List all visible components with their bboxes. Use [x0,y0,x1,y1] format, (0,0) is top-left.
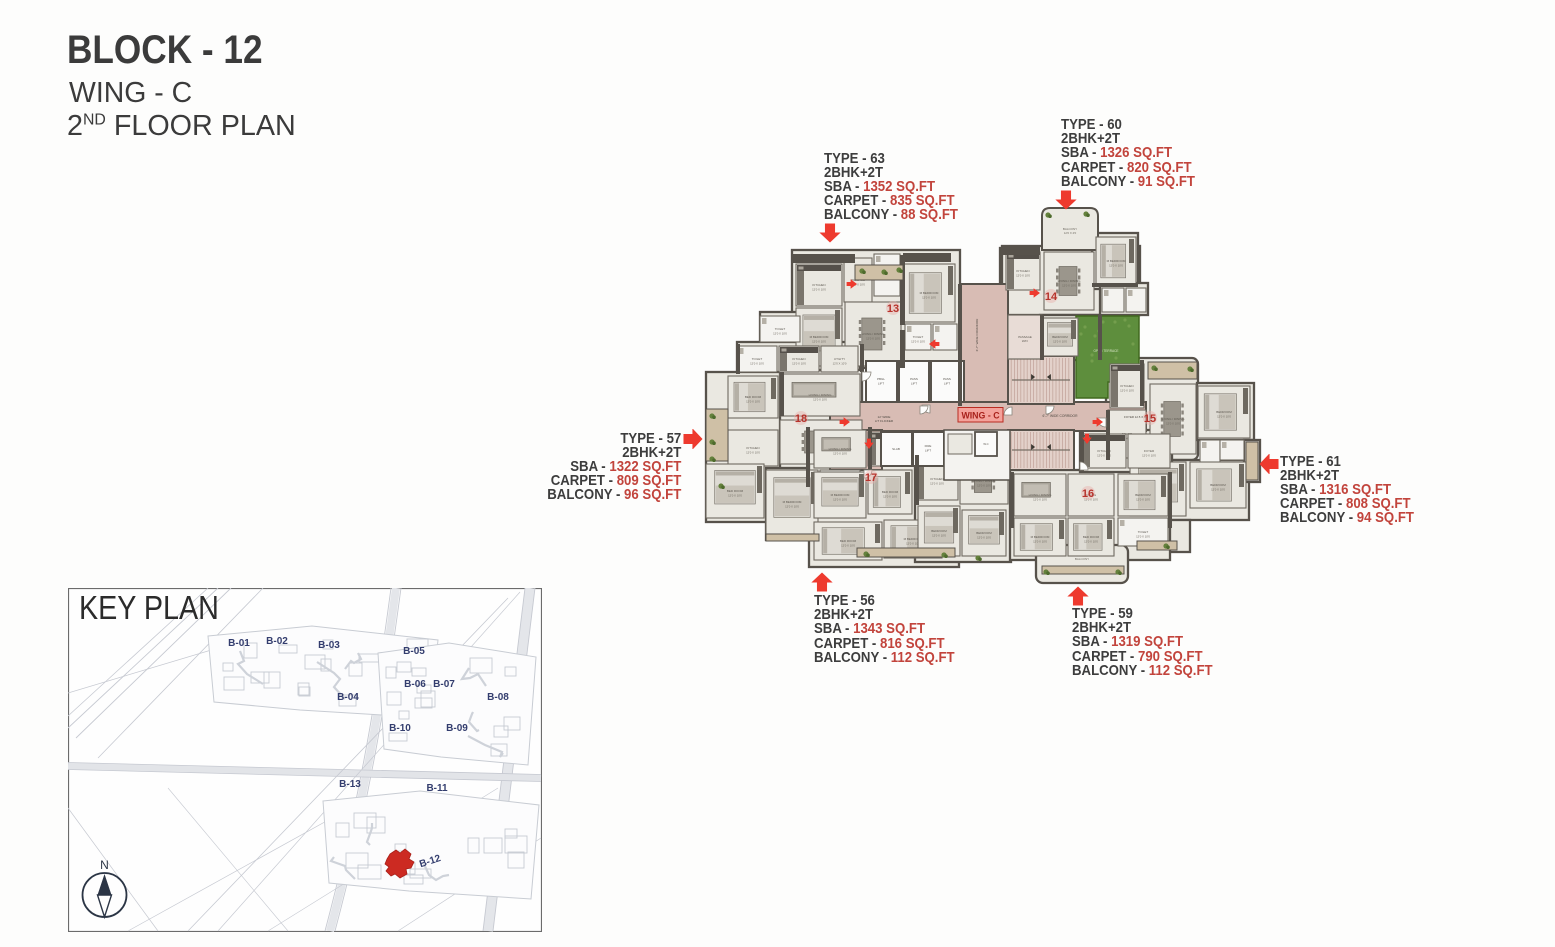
svg-text:LIFT: LIFT [878,382,884,386]
svg-text:12'0 X 10'0: 12'0 X 10'0 [773,331,787,335]
svg-text:WING - C: WING - C [961,410,1000,420]
svg-text:12'0 X 10'0: 12'0 X 10'0 [1084,539,1098,543]
svg-text:B-08: B-08 [487,692,509,703]
svg-text:B-04: B-04 [337,692,359,703]
svg-text:12'0 X 10'0: 12'0 X 10'0 [1211,487,1225,491]
svg-text:18: 18 [795,413,807,425]
svg-text:14: 14 [1045,291,1058,303]
svg-text:PASS: PASS [910,377,918,381]
svg-text:12'0 X 10'0: 12'0 X 10'0 [728,493,742,497]
svg-text:FIRE: FIRE [925,444,932,448]
svg-text:12'0 X 10'0: 12'0 X 10'0 [792,361,806,365]
svg-text:12'0 X 10'0: 12'0 X 10'0 [1109,263,1123,267]
svg-text:16: 16 [1082,488,1094,500]
svg-text:12'0 X 10'0: 12'0 X 10'0 [833,451,847,455]
svg-text:LIFT: LIFT [944,382,950,386]
svg-text:12'0 X 10'0: 12'0 X 10'0 [1217,414,1231,418]
svg-text:12'0 X 10'0: 12'0 X 10'0 [930,481,944,485]
svg-text:6'-7" WIDE CORRIDOR: 6'-7" WIDE CORRIDOR [975,318,979,352]
svg-text:12'0 X 10'0: 12'0 X 10'0 [1142,453,1156,457]
svg-text:12'0 X 10'0: 12'0 X 10'0 [812,339,826,343]
svg-text:B-11: B-11 [426,783,448,794]
svg-text:B-09: B-09 [446,723,468,734]
svg-text:12'0 X 10'0: 12'0 X 10'0 [1136,534,1150,538]
svg-text:12'0 X 10'0: 12'0 X 10'0 [785,504,799,508]
svg-text:B-06: B-06 [404,679,426,690]
svg-text:LIT FLICKER: LIT FLICKER [875,419,894,423]
svg-text:12'0 X 4'0: 12'0 X 4'0 [1064,231,1077,235]
svg-text:6'-7" WIDE CORRIDOR: 6'-7" WIDE CORRIDOR [1043,414,1079,418]
svg-text:12'0 X 10'0: 12'0 X 10'0 [813,397,827,401]
svg-text:PBGL: PBGL [877,377,885,381]
svg-text:12'0 X 10'0: 12'0 X 10'0 [1062,283,1076,287]
svg-text:13: 13 [887,303,899,315]
svg-text:BALCONY: BALCONY [1075,557,1089,561]
svg-text:12'0 X 10'0: 12'0 X 10'0 [977,483,991,487]
svg-text:12'0 X 10'0: 12'0 X 10'0 [883,494,897,498]
svg-text:LIFT: LIFT [911,382,917,386]
svg-text:B-13: B-13 [339,779,361,790]
svg-text:B-02: B-02 [266,636,288,647]
svg-text:LIFT: LIFT [925,449,931,453]
svg-text:N: N [100,858,109,872]
svg-text:17: 17 [865,472,877,484]
svg-text:WAY: WAY [1022,339,1028,343]
svg-text:12'0 X 10'0: 12'0 X 10'0 [866,336,880,340]
svg-text:12'0 X 10'0: 12'0 X 10'0 [746,399,760,403]
svg-text:12'0 X 10'0: 12'0 X 10'0 [932,533,946,537]
svg-text:12'0 X 10'0: 12'0 X 10'0 [1053,339,1067,343]
svg-text:12'0 X 10'0: 12'0 X 10'0 [1166,421,1180,425]
svg-text:PASS: PASS [943,377,951,381]
svg-text:12'0 X 10'0: 12'0 X 10'0 [922,295,936,299]
svg-text:12'0 X 10'0: 12'0 X 10'0 [746,450,760,454]
svg-text:12'0 X 10'0: 12'0 X 10'0 [911,339,925,343]
svg-text:B-07: B-07 [433,679,455,690]
svg-text:12'0 X 10'0: 12'0 X 10'0 [1033,497,1047,501]
svg-text:15: 15 [1144,413,1156,425]
svg-text:12'0 X 10'0: 12'0 X 10'0 [812,287,826,291]
svg-text:W.C: W.C [983,442,988,446]
svg-text:12'0 X 10'0: 12'0 X 10'0 [977,535,991,539]
svg-text:B-01: B-01 [228,638,250,649]
svg-text:SLAB: SLAB [892,447,900,451]
svg-text:B-03: B-03 [318,640,340,651]
svg-text:12'0 X 10'0: 12'0 X 10'0 [1033,539,1047,543]
svg-text:OPEN TERRACE: OPEN TERRACE [1093,349,1118,353]
svg-text:12'0 X 10'0: 12'0 X 10'0 [833,497,847,501]
svg-text:12'0 X 10'0: 12'0 X 10'0 [750,361,764,365]
svg-text:12'0 X 10'0: 12'0 X 10'0 [833,361,847,365]
svg-text:12'0 X 10'0: 12'0 X 10'0 [1136,497,1150,501]
svg-text:12'0 X 10'0: 12'0 X 10'0 [1016,273,1030,277]
svg-text:12'0 X 10'0: 12'0 X 10'0 [1120,388,1134,392]
svg-text:12'0 X 10'0: 12'0 X 10'0 [841,543,855,547]
svg-text:B-05: B-05 [403,646,425,657]
svg-text:B-10: B-10 [389,723,411,734]
